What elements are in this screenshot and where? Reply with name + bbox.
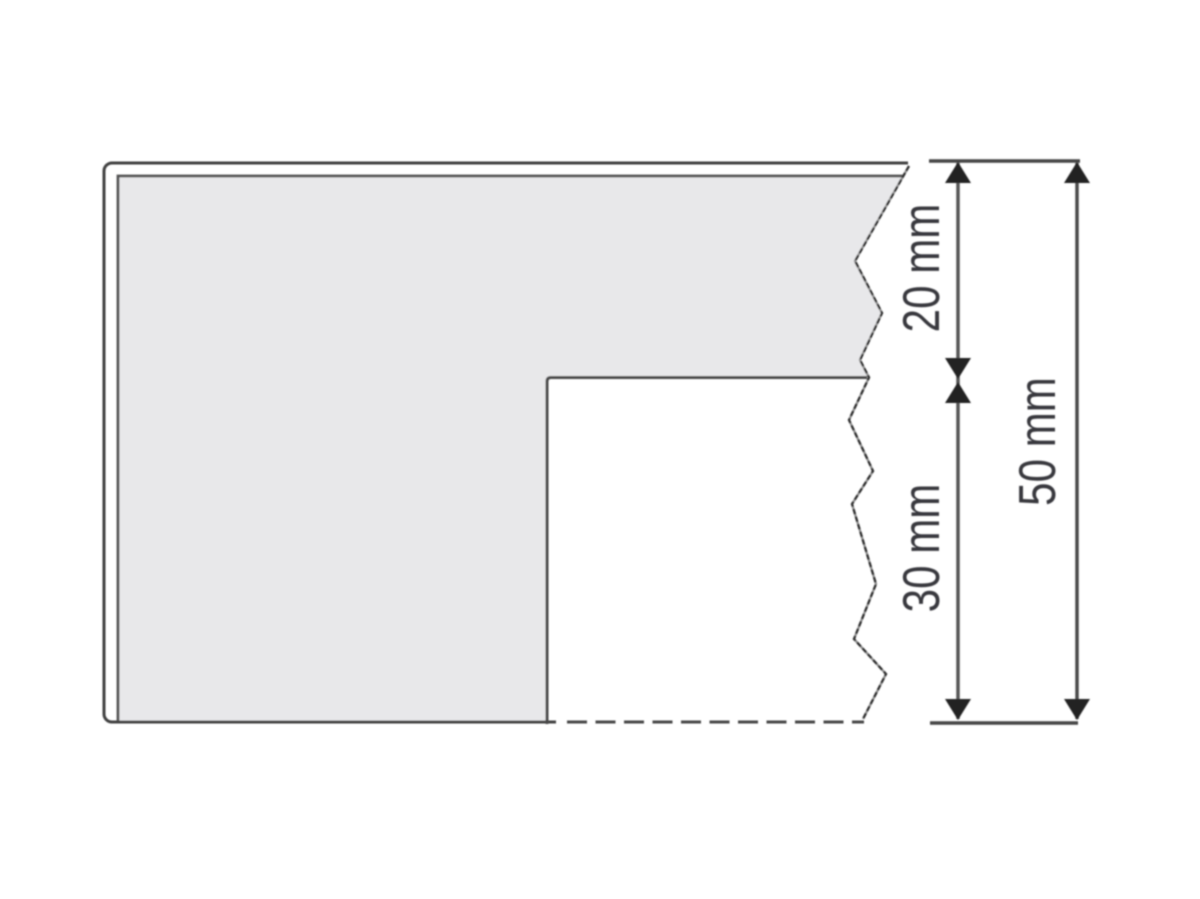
svg-text:30 mm: 30 mm [893, 484, 951, 613]
svg-text:20 mm: 20 mm [893, 204, 951, 333]
svg-text:50 mm: 50 mm [1009, 377, 1067, 506]
